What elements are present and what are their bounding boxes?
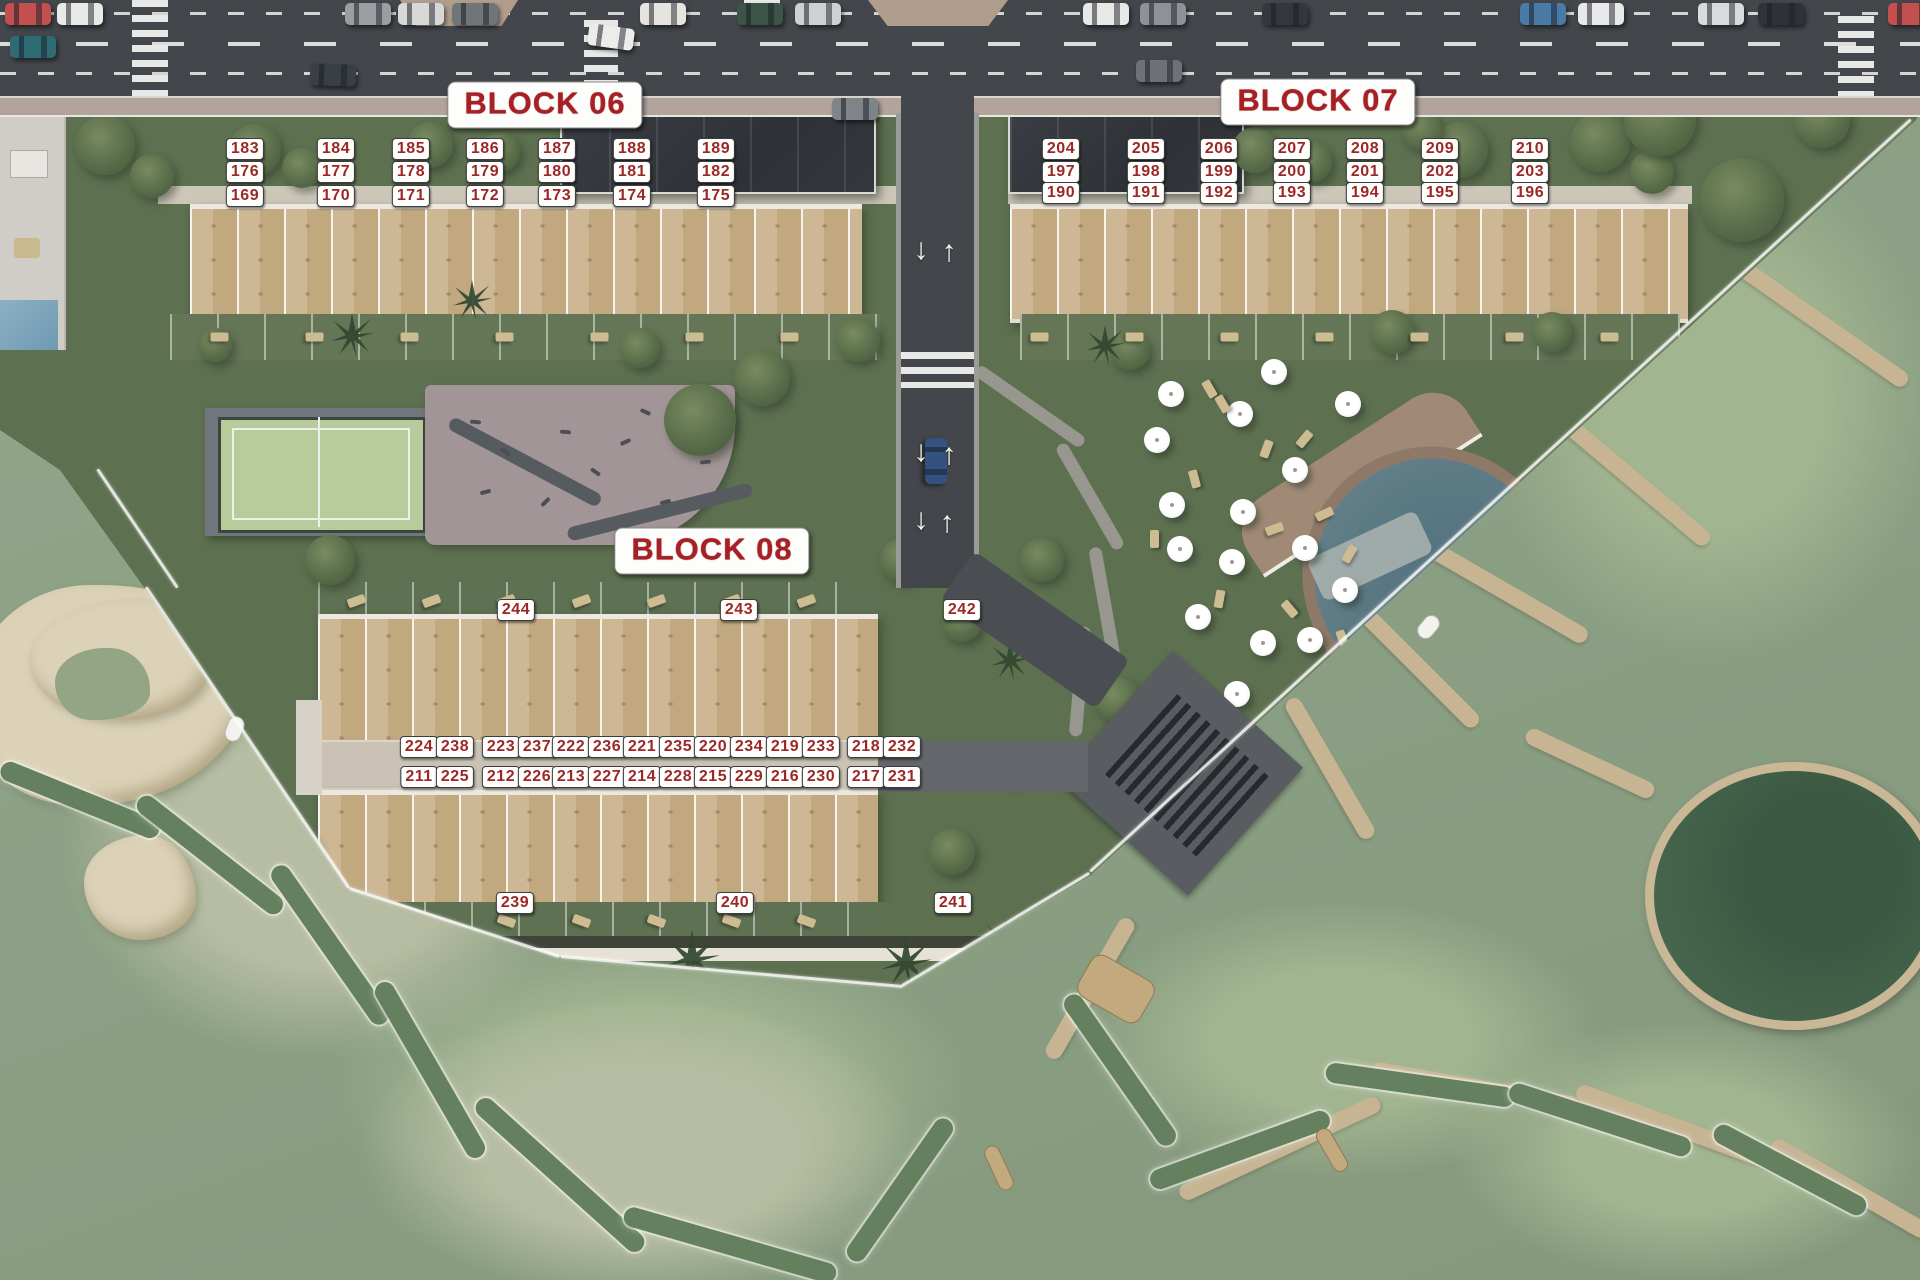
sun-lounger (1221, 333, 1239, 342)
pedestrian-path (973, 364, 1087, 449)
sun-lounger (306, 333, 324, 342)
lane-line (0, 42, 1920, 46)
unit-badge-205[interactable]: 205 (1127, 138, 1165, 160)
sun-lounger (1214, 589, 1226, 608)
unit-badge-210[interactable]: 210 (1511, 138, 1549, 160)
footbridge (982, 1143, 1017, 1193)
block-08-label: BLOCK 08 (614, 528, 809, 575)
block-08-north-building (318, 614, 878, 749)
tree (1532, 312, 1572, 352)
unit-badge-233[interactable]: 233 (802, 736, 840, 758)
block-07-label: BLOCK 07 (1220, 79, 1415, 126)
unit-badge-228[interactable]: 228 (659, 766, 697, 788)
unit-badge-196[interactable]: 196 (1511, 182, 1549, 204)
pool-umbrella-icon (1167, 536, 1193, 562)
tree (1020, 538, 1064, 582)
unit-badge-186[interactable]: 186 (466, 138, 504, 160)
sun-lounger (1150, 530, 1159, 548)
unit-badge-221[interactable]: 221 (623, 736, 661, 758)
unit-badge-173[interactable]: 173 (538, 185, 576, 207)
unit-badge-217[interactable]: 217 (847, 766, 885, 788)
unit-badge-236[interactable]: 236 (588, 736, 626, 758)
tree (1700, 158, 1784, 242)
unit-badge-182[interactable]: 182 (697, 161, 735, 183)
unit-badge-177[interactable]: 177 (317, 161, 355, 183)
unit-badge-188[interactable]: 188 (613, 138, 651, 160)
car (640, 3, 686, 25)
unit-badge-174[interactable]: 174 (613, 185, 651, 207)
pool-umbrella-icon (1282, 457, 1308, 483)
unit-badge-232[interactable]: 232 (883, 736, 921, 758)
unit-badge-194[interactable]: 194 (1346, 182, 1384, 204)
sun-lounger (1126, 333, 1144, 342)
golf-cart (1414, 612, 1444, 643)
unit-badge-203[interactable]: 203 (1511, 161, 1549, 183)
unit-badge-218[interactable]: 218 (847, 736, 885, 758)
block-08-entrance-deck (296, 700, 322, 795)
unit-badge-240[interactable]: 240 (716, 892, 754, 914)
unit-badge-192[interactable]: 192 (1200, 182, 1238, 204)
bunker-island (55, 648, 150, 720)
tree (1370, 310, 1414, 354)
palm-tree (211, 1055, 253, 1097)
block-08-north-garden (318, 582, 878, 614)
unit-badge-197[interactable]: 197 (1042, 161, 1080, 183)
unit-badge-244[interactable]: 244 (497, 599, 535, 621)
unit-badge-183[interactable]: 183 (226, 138, 264, 160)
sun-lounger (781, 333, 799, 342)
unit-badge-190[interactable]: 190 (1042, 182, 1080, 204)
pool-umbrella-icon (1230, 499, 1256, 525)
pedestrian-path (1054, 441, 1125, 551)
sun-lounger (401, 333, 419, 342)
unit-badge-207[interactable]: 207 (1273, 138, 1311, 160)
unit-badge-195[interactable]: 195 (1421, 182, 1459, 204)
car (1698, 3, 1744, 25)
unit-badge-227[interactable]: 227 (588, 766, 626, 788)
unit-badge-229[interactable]: 229 (730, 766, 768, 788)
pool-umbrella-icon (1185, 604, 1211, 630)
unit-badge-212[interactable]: 212 (482, 766, 520, 788)
unit-badge-231[interactable]: 231 (883, 766, 921, 788)
tree (75, 115, 135, 175)
access-road (901, 96, 974, 588)
unit-badge-215[interactable]: 215 (694, 766, 732, 788)
unit-badge-171[interactable]: 171 (392, 185, 430, 207)
unit-badge-234[interactable]: 234 (730, 736, 768, 758)
sun-lounger (1259, 439, 1274, 459)
unit-badge-189[interactable]: 189 (697, 138, 735, 160)
exercise-equipment (560, 430, 571, 435)
tree (929, 829, 975, 875)
tree (1570, 112, 1630, 172)
car (1578, 3, 1624, 25)
car (832, 98, 878, 120)
padel-court-lines (232, 428, 410, 520)
tree (130, 154, 174, 198)
sun-lounger (1031, 333, 1049, 342)
block-08-south-building (318, 790, 878, 911)
car (10, 36, 56, 58)
car (5, 3, 51, 25)
sun-lounger (1188, 469, 1201, 489)
small-pool (0, 300, 58, 350)
unit-badge-208[interactable]: 208 (1346, 138, 1384, 160)
pool-umbrella-icon (1219, 549, 1245, 575)
pool-umbrella-icon (1332, 577, 1358, 603)
unit-badge-187[interactable]: 187 (538, 138, 576, 160)
sun-lounger (1411, 333, 1429, 342)
pool-umbrella-icon (1144, 427, 1170, 453)
pool-umbrella-icon (1297, 627, 1323, 653)
unit-badge-201[interactable]: 201 (1346, 161, 1384, 183)
block-06-label: BLOCK 06 (447, 82, 642, 129)
sun-lounger (496, 333, 514, 342)
unit-badge-178[interactable]: 178 (392, 161, 430, 183)
sun-lounger (591, 333, 609, 342)
unit-badge-199[interactable]: 199 (1200, 161, 1238, 183)
unit-badge-241[interactable]: 241 (934, 892, 972, 914)
car (1136, 60, 1182, 82)
unit-badge-238[interactable]: 238 (436, 736, 474, 758)
sun-lounger (1506, 333, 1524, 342)
unit-badge-224[interactable]: 224 (400, 736, 438, 758)
unit-badge-206[interactable]: 206 (1200, 138, 1238, 160)
sun-lounger (1601, 333, 1619, 342)
unit-badge-176[interactable]: 176 (226, 161, 264, 183)
sun-lounger (686, 333, 704, 342)
tree (1129, 1209, 1175, 1255)
pool-umbrella-icon (1335, 391, 1361, 417)
unit-badge-243[interactable]: 243 (720, 599, 758, 621)
unit-badge-216[interactable]: 216 (766, 766, 804, 788)
car (310, 63, 357, 87)
tree (1232, 127, 1278, 173)
terrace-furniture (14, 238, 40, 258)
car (1758, 3, 1804, 25)
sand-bunker (84, 835, 196, 940)
sun-lounger (211, 333, 229, 342)
car (345, 3, 391, 25)
tree (620, 328, 660, 368)
unit-badge-191[interactable]: 191 (1127, 182, 1165, 204)
road-arrow-up-icon: ↑ (942, 440, 957, 470)
car (1888, 3, 1920, 25)
sun-lounger (1201, 379, 1218, 399)
unit-badge-209[interactable]: 209 (1421, 138, 1459, 160)
crosswalk (901, 352, 974, 388)
unit-badge-230[interactable]: 230 (802, 766, 840, 788)
site-plan: ↓↑↓↑↓↑ BLOCK 06 BLOCK 07 BLOCK 08 183184… (0, 0, 1920, 1280)
unit-badge-170[interactable]: 170 (317, 185, 355, 207)
exercise-equipment (470, 420, 481, 425)
car (1140, 3, 1186, 25)
unit-badge-175[interactable]: 175 (697, 185, 735, 207)
unit-badge-181[interactable]: 181 (613, 161, 651, 183)
unit-badge-193[interactable]: 193 (1273, 182, 1311, 204)
car (1083, 3, 1129, 25)
tree (664, 384, 736, 456)
block-07-building (1010, 204, 1688, 323)
pond (1645, 762, 1920, 1030)
road-arrow-down-icon: ↓ (914, 235, 929, 265)
pool-umbrella-icon (1250, 630, 1276, 656)
unit-badge-235[interactable]: 235 (659, 736, 697, 758)
block-06-building (190, 204, 862, 323)
pool-umbrella-icon (1227, 401, 1253, 427)
unit-badge-204[interactable]: 204 (1042, 138, 1080, 160)
car (1520, 3, 1566, 25)
unit-badge-219[interactable]: 219 (766, 736, 804, 758)
tree (1630, 150, 1674, 194)
unit-badge-200[interactable]: 200 (1273, 161, 1311, 183)
unit-badge-239[interactable]: 239 (496, 892, 534, 914)
terrace-furniture (10, 150, 48, 178)
pool-umbrella-icon (1261, 359, 1287, 385)
unit-badge-211[interactable]: 211 (400, 766, 437, 788)
unit-badge-198[interactable]: 198 (1127, 161, 1165, 183)
tree (229, 1059, 275, 1105)
tree (836, 318, 880, 362)
unit-badge-225[interactable]: 225 (436, 766, 474, 788)
sun-lounger (1295, 429, 1313, 449)
road-arrow-down-icon: ↓ (914, 437, 929, 467)
curb (974, 113, 979, 588)
median-island (868, 0, 1008, 26)
crosswalk (1838, 16, 1874, 96)
tree (734, 350, 790, 406)
unit-badge-220[interactable]: 220 (694, 736, 732, 758)
road-arrow-up-icon: ↑ (942, 237, 957, 267)
palm-tree (17, 983, 55, 1021)
unit-badge-242[interactable]: 242 (943, 599, 981, 621)
pool-umbrella-icon (1158, 381, 1184, 407)
road-arrow-down-icon: ↓ (914, 505, 929, 535)
unit-badge-184[interactable]: 184 (317, 138, 355, 160)
road-arrow-up-icon: ↑ (940, 508, 955, 538)
unit-badge-222[interactable]: 222 (552, 736, 590, 758)
tree (305, 535, 355, 585)
pool-umbrella-icon (1159, 492, 1185, 518)
crosswalk (132, 0, 168, 96)
car (398, 3, 444, 25)
car (57, 3, 103, 25)
lane-line (0, 72, 1920, 75)
padel-net-line (318, 417, 320, 527)
unit-badge-172[interactable]: 172 (466, 185, 504, 207)
pool-umbrella-icon (1292, 535, 1318, 561)
unit-badge-202[interactable]: 202 (1421, 161, 1459, 183)
car (795, 3, 841, 25)
unit-badge-214[interactable]: 214 (623, 766, 661, 788)
unit-badge-169[interactable]: 169 (226, 185, 264, 207)
unit-badge-237[interactable]: 237 (518, 736, 556, 758)
unit-badge-223[interactable]: 223 (482, 736, 520, 758)
golf-path (1523, 726, 1657, 801)
unit-badge-213[interactable]: 213 (552, 766, 590, 788)
tree (1538, 880, 1582, 924)
unit-badge-180[interactable]: 180 (538, 161, 576, 183)
car (737, 3, 783, 25)
unit-badge-179[interactable]: 179 (466, 161, 504, 183)
car (452, 3, 498, 25)
unit-badge-226[interactable]: 226 (518, 766, 556, 788)
unit-badge-185[interactable]: 185 (392, 138, 430, 160)
sun-lounger (1316, 333, 1334, 342)
car (1262, 3, 1308, 25)
